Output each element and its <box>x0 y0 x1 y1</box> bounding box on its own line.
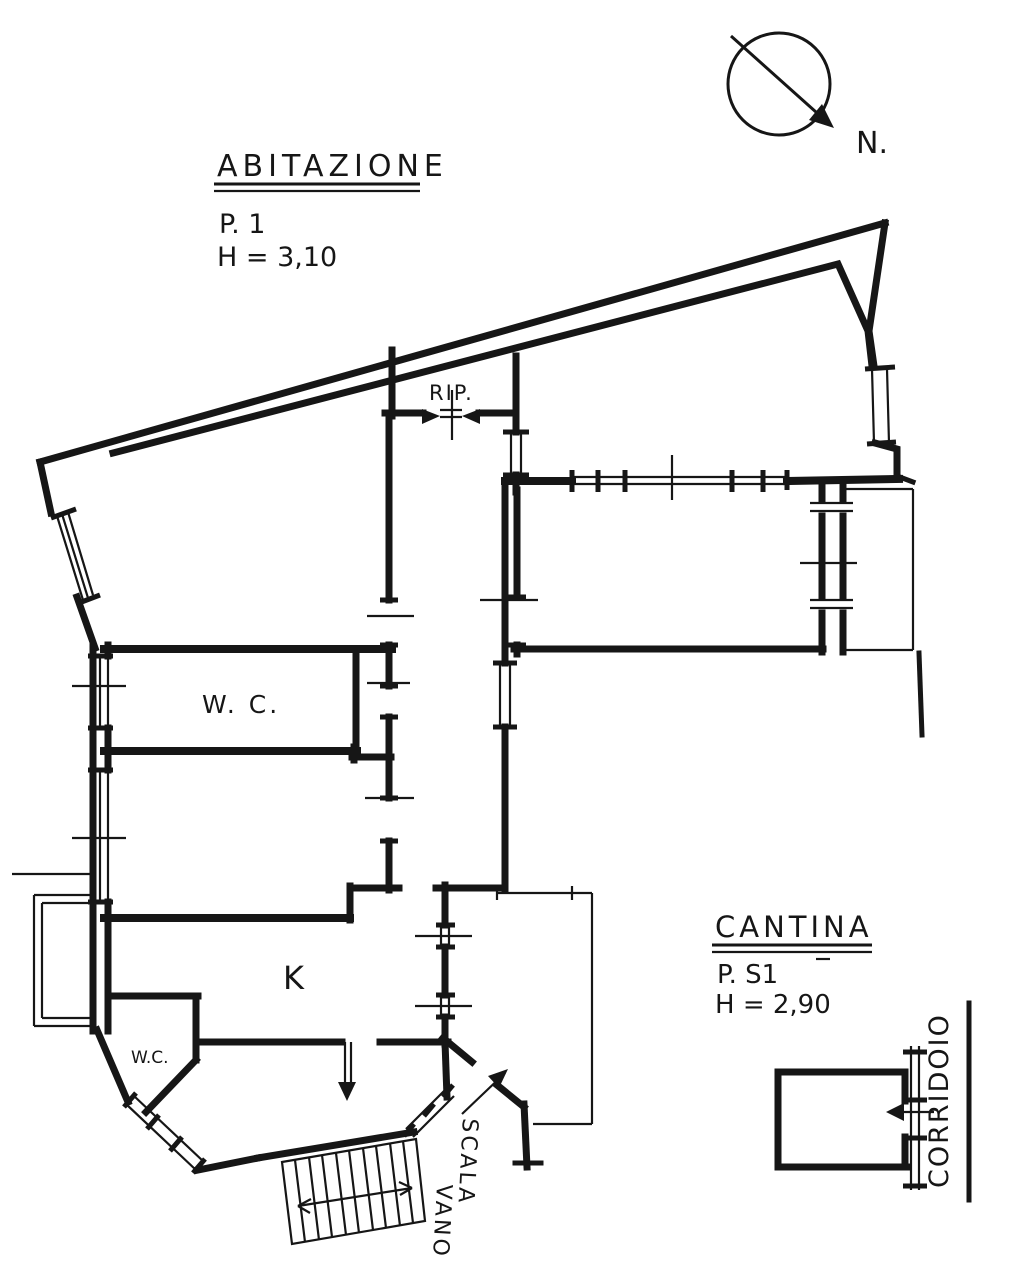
apartment-height: H = 3,10 <box>217 242 337 273</box>
apartment-interior-walls <box>104 350 899 1170</box>
corridor-label: CORRIDOIO <box>924 1013 955 1188</box>
north-indicator: N. <box>728 33 888 161</box>
kitchen-label: K <box>283 959 305 997</box>
north-arrow-line <box>731 36 826 121</box>
staircase <box>282 1139 425 1244</box>
apartment-title-block: ABITAZIONE P. 1 H = 3,10 <box>214 149 448 273</box>
kitchen-door <box>338 1042 356 1101</box>
stairwell-label-scala: SCALA <box>452 1118 482 1206</box>
north-label: N. <box>856 126 888 161</box>
stairwell-void <box>497 886 592 1124</box>
cellar-height: H = 2,90 <box>715 990 831 1020</box>
apartment-floor: P. 1 <box>219 209 265 240</box>
floorplan-sheet: N. ABITAZIONE P. 1 H = 3,10 CANTINA P. S… <box>0 0 1009 1276</box>
stairwell-label-vano: VANO <box>427 1184 456 1260</box>
floor-plan-drawing: N. ABITAZIONE P. 1 H = 3,10 CANTINA P. S… <box>0 0 1009 1276</box>
apartment-title: ABITAZIONE <box>217 149 448 184</box>
cellar-title: CANTINA <box>715 910 873 944</box>
west-balcony <box>34 895 90 1026</box>
bathroom-small-label: W.C. <box>131 1048 169 1068</box>
room-labels: RIP. W. C. K W.C. VANO SCALA CORRIDOIO <box>131 381 955 1259</box>
wall-ticks <box>51 367 896 1173</box>
apartment-outer-walls <box>40 223 922 1102</box>
cellar-floor: P. S1 <box>717 960 778 990</box>
storage-label: RIP. <box>429 381 474 405</box>
east-terrace <box>845 489 913 650</box>
bathroom-main-label: W. C. <box>202 690 280 719</box>
cellar-title-block: CANTINA P. S1 H = 2,90 <box>712 910 873 1020</box>
